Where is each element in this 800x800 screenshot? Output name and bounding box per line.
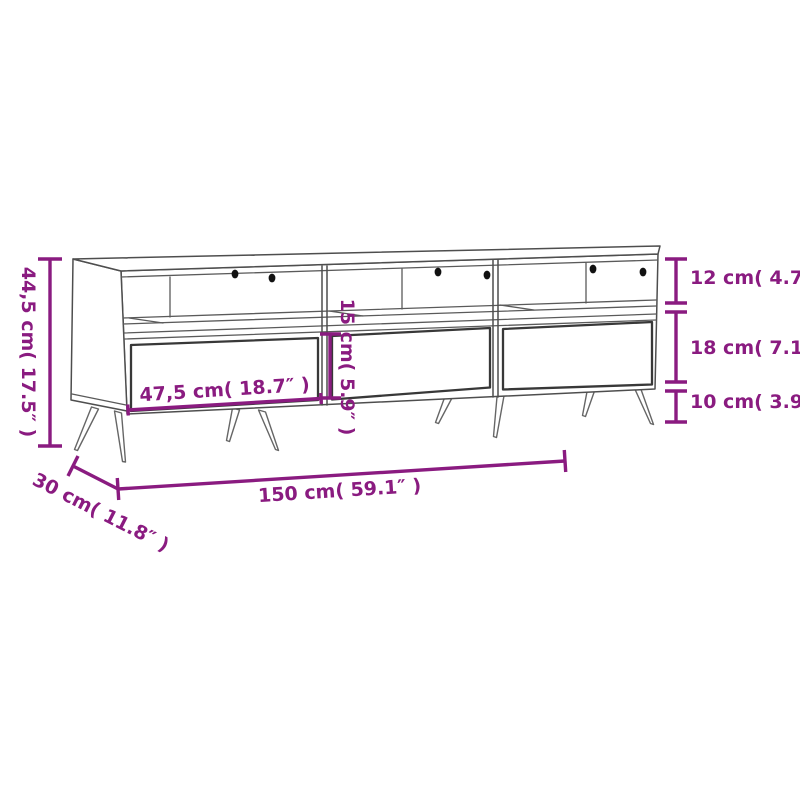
dimension-cap (128, 405, 129, 416)
dimension-drawer-height-middle-label: 15 cm( 5.9″ ) (336, 299, 358, 436)
diagram-canvas: 44,5 cm( 17.5″ ) 12 cm( 4.7″ ) 18 cm( 7.… (0, 0, 800, 800)
leg-back-right (583, 389, 595, 417)
dimension-compartment-height: 12 cm( 4.7″ ) (665, 259, 800, 303)
drawer-front-3 (503, 322, 652, 390)
leg-front-left (115, 411, 126, 462)
cable-hole-dot (232, 270, 239, 279)
dimension-overall-depth-line (73, 466, 118, 489)
dimension-overall-width: 150 cm( 59.1″ ) (117, 450, 565, 507)
cable-hole-dot (484, 271, 491, 280)
leg-back-midleft (227, 408, 240, 442)
cable-hole-dot (269, 274, 276, 283)
dimension-cap (564, 450, 565, 472)
dimension-drawer-height-right-label: 18 cm( 7.1″ ) (690, 337, 800, 359)
dimension-overall-height-label: 44,5 cm( 17.5″ ) (17, 267, 39, 438)
tv-cabinet-drawing (71, 246, 660, 462)
dimension-leg-height: 10 cm( 3.9″ ) (665, 391, 800, 422)
cable-hole-dot (640, 268, 647, 277)
dimension-compartment-height-label: 12 cm( 4.7″ ) (690, 267, 800, 289)
dimension-drawer-height-right: 18 cm( 7.1″ ) (665, 312, 800, 382)
leg-front-right (634, 386, 654, 425)
leg-front-midleft (259, 410, 279, 451)
cabinet-left-panel (71, 259, 127, 411)
leg-front-midright (494, 391, 505, 438)
dimension-overall-height: 44,5 cm( 17.5″ ) (17, 259, 62, 446)
dimension-overall-depth: 30 cm( 11.8″ ) (29, 456, 173, 557)
product-dimension-diagram: 44,5 cm( 17.5″ ) 12 cm( 4.7″ ) 18 cm( 7.… (0, 0, 800, 800)
dimension-leg-height-label: 10 cm( 3.9″ ) (690, 391, 800, 413)
cable-hole-dot (590, 265, 597, 274)
leg-back-left (75, 407, 99, 451)
cable-hole-dot (435, 268, 442, 277)
